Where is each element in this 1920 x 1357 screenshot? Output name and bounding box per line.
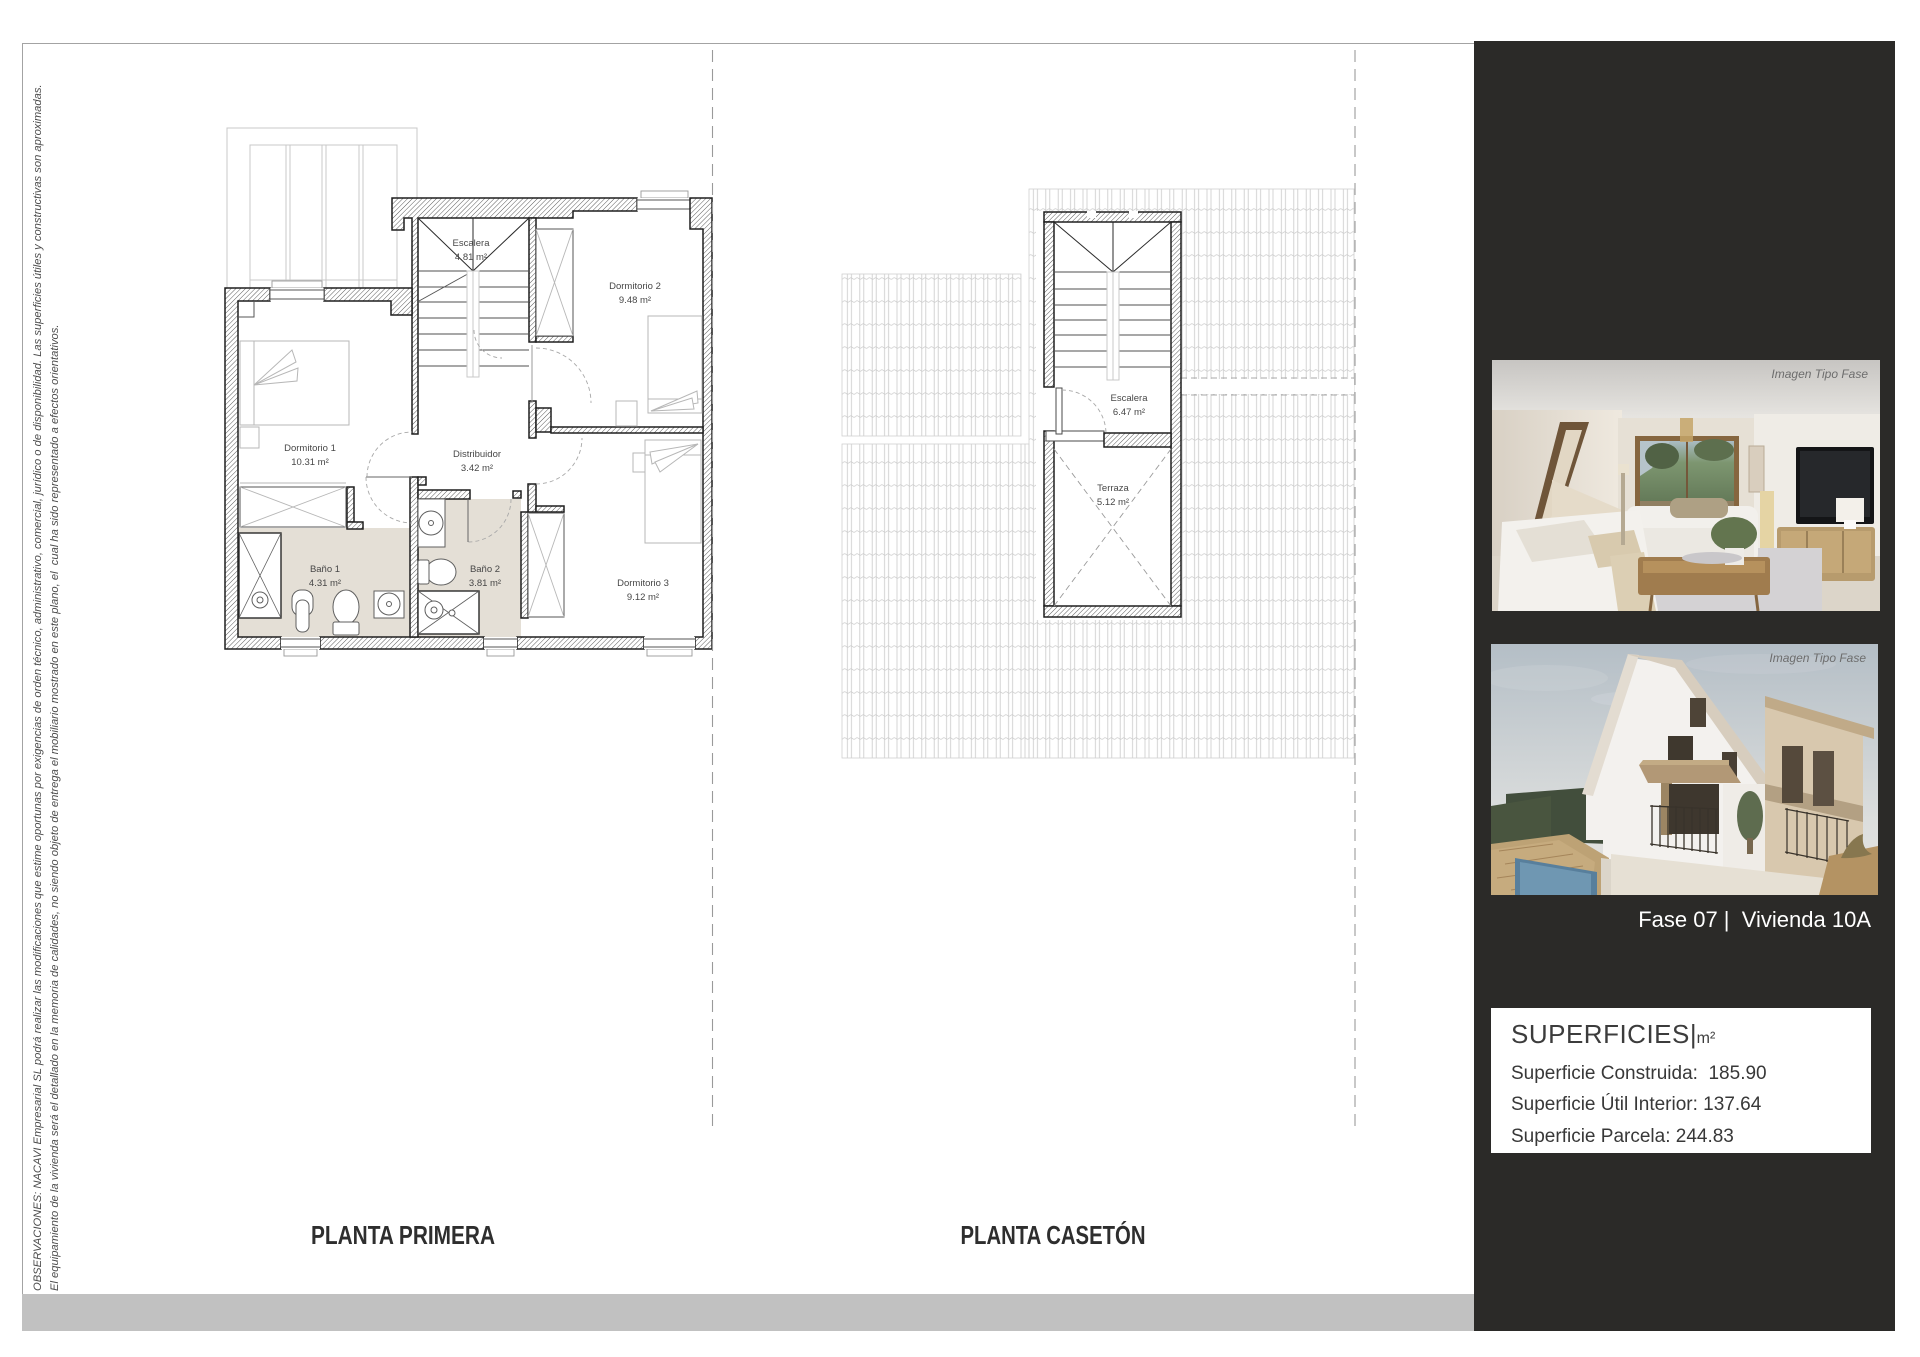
svg-text:10.31 m²: 10.31 m² [291, 457, 329, 468]
svg-text:5.12 m²: 5.12 m² [1097, 497, 1129, 508]
svg-text:Imagen Tipo Fase: Imagen Tipo Fase [1771, 367, 1868, 381]
svg-text:Baño 1: Baño 1 [310, 564, 340, 575]
svg-text:Escalera: Escalera [453, 238, 491, 249]
svg-text:Terraza: Terraza [1097, 483, 1129, 494]
svg-text:6.47 m²: 6.47 m² [1113, 407, 1145, 418]
svg-text:Imagen Tipo Fase: Imagen Tipo Fase [1769, 651, 1866, 665]
svg-text:9.48 m²: 9.48 m² [619, 295, 651, 306]
svg-text:Dormitorio 1: Dormitorio 1 [284, 443, 336, 454]
svg-text:Escalera: Escalera [1111, 393, 1149, 404]
svg-text:9.12 m²: 9.12 m² [627, 592, 659, 603]
svg-text:3.42 m²: 3.42 m² [461, 463, 493, 474]
svg-text:Distribuidor: Distribuidor [453, 449, 501, 460]
svg-text:PLANTA PRIMERA: PLANTA PRIMERA [311, 1220, 495, 1250]
svg-text:Baño 2: Baño 2 [470, 564, 500, 575]
svg-text:3.81 m²: 3.81 m² [469, 578, 501, 589]
svg-text:PLANTA CASETÓN: PLANTA CASETÓN [961, 1220, 1146, 1250]
svg-text:Dormitorio 3: Dormitorio 3 [617, 578, 669, 589]
svg-text:4.31 m²: 4.31 m² [309, 578, 341, 589]
svg-text:Dormitorio 2: Dormitorio 2 [609, 281, 661, 292]
svg-text:4.81 m²: 4.81 m² [455, 252, 487, 263]
